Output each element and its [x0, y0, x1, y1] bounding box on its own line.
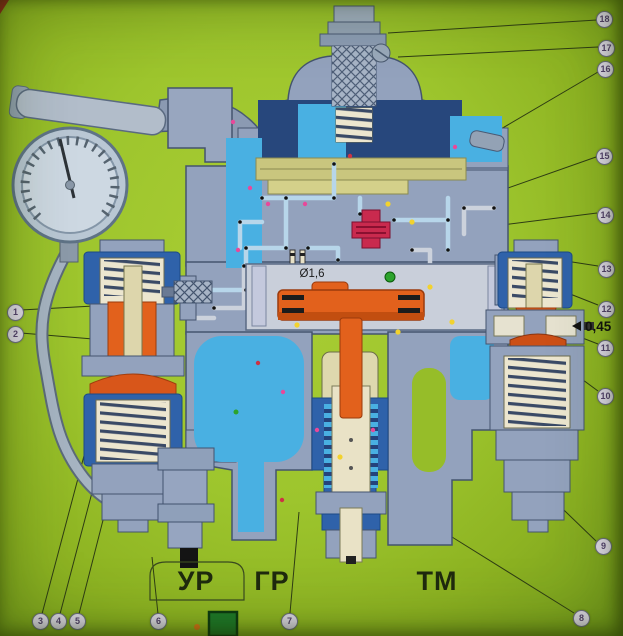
callout-11: 11 [597, 340, 614, 357]
green-block [209, 612, 237, 636]
callout-2: 2 [7, 326, 24, 343]
poster: Ø1,6 0,45 УР ГР ТМ 1 2 3 4 5 6 7 8 9 10 … [0, 0, 623, 636]
reducer-diaphragm [90, 374, 176, 394]
callout-15: 15 [596, 148, 613, 165]
slide-valve-lower [268, 180, 408, 194]
callout-12: 12 [598, 301, 615, 318]
center-valve-assembly [312, 318, 388, 564]
callout-14: 14 [597, 207, 614, 224]
ur-pipe-fitting [158, 448, 214, 568]
callout-17: 17 [598, 40, 615, 57]
gauge-hub [66, 181, 75, 190]
callout-5: 5 [69, 613, 86, 630]
callout-4: 4 [50, 613, 67, 630]
lower-cyan-chamber [194, 336, 304, 462]
stabilizer-main-spring [508, 358, 566, 426]
reducer-main-spring [100, 402, 166, 460]
orange-dot [194, 624, 200, 630]
top-nut [334, 6, 374, 24]
callout-6: 6 [150, 613, 167, 630]
port-label-tm: ТМ [417, 566, 458, 596]
stabilizer-orifice-label: 0,45 [585, 319, 612, 334]
callout-9: 9 [595, 538, 612, 555]
callout-10: 10 [597, 388, 614, 405]
green-port-dot [385, 272, 395, 282]
callout-7: 7 [281, 613, 298, 630]
valve-stem [340, 318, 362, 418]
reducer-adjusting-screw [174, 281, 212, 303]
handle-bracket [168, 88, 232, 162]
body-cutout [412, 368, 446, 472]
top-spring [336, 108, 372, 142]
callout-8: 8 [573, 610, 590, 627]
stabilizer-assembly [486, 240, 594, 532]
equalizing-piston [246, 264, 504, 330]
orifice-label: Ø1,6 [300, 268, 325, 280]
port-label-gr: ГР [254, 566, 289, 596]
photo-corner-artifact [0, 0, 9, 14]
callout-16: 16 [597, 61, 614, 78]
handle-grip [15, 88, 167, 137]
callout-18: 18 [596, 11, 613, 28]
port-label-ur: УР [178, 566, 215, 596]
callout-1: 1 [7, 304, 24, 321]
ur-stub [180, 548, 198, 568]
callout-13: 13 [598, 261, 615, 278]
callout-3: 3 [32, 613, 49, 630]
valve-diagram: Ø1,6 0,45 УР ГР ТМ [0, 0, 623, 636]
